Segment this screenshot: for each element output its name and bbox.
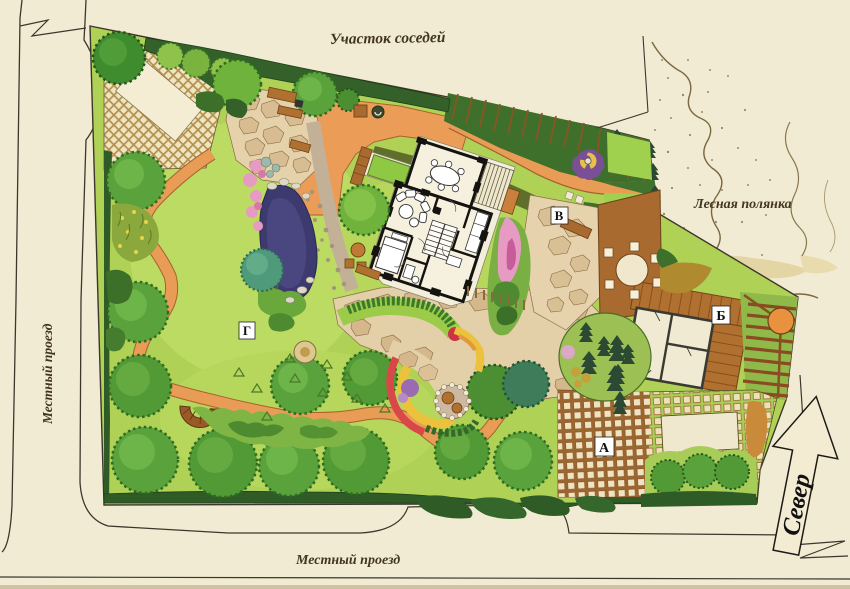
svg-text:Б: Б (716, 309, 725, 324)
svg-text:Местный проезд: Местный проезд (40, 323, 55, 425)
svg-text:Лесная полянка: Лесная полянка (693, 197, 792, 212)
svg-text:Участок соседей: Участок соседей (330, 29, 446, 48)
svg-text:Местный проезд: Местный проезд (295, 553, 400, 568)
svg-text:В: В (555, 208, 564, 223)
svg-text:А: А (599, 441, 610, 456)
svg-text:Г: Г (243, 323, 251, 338)
